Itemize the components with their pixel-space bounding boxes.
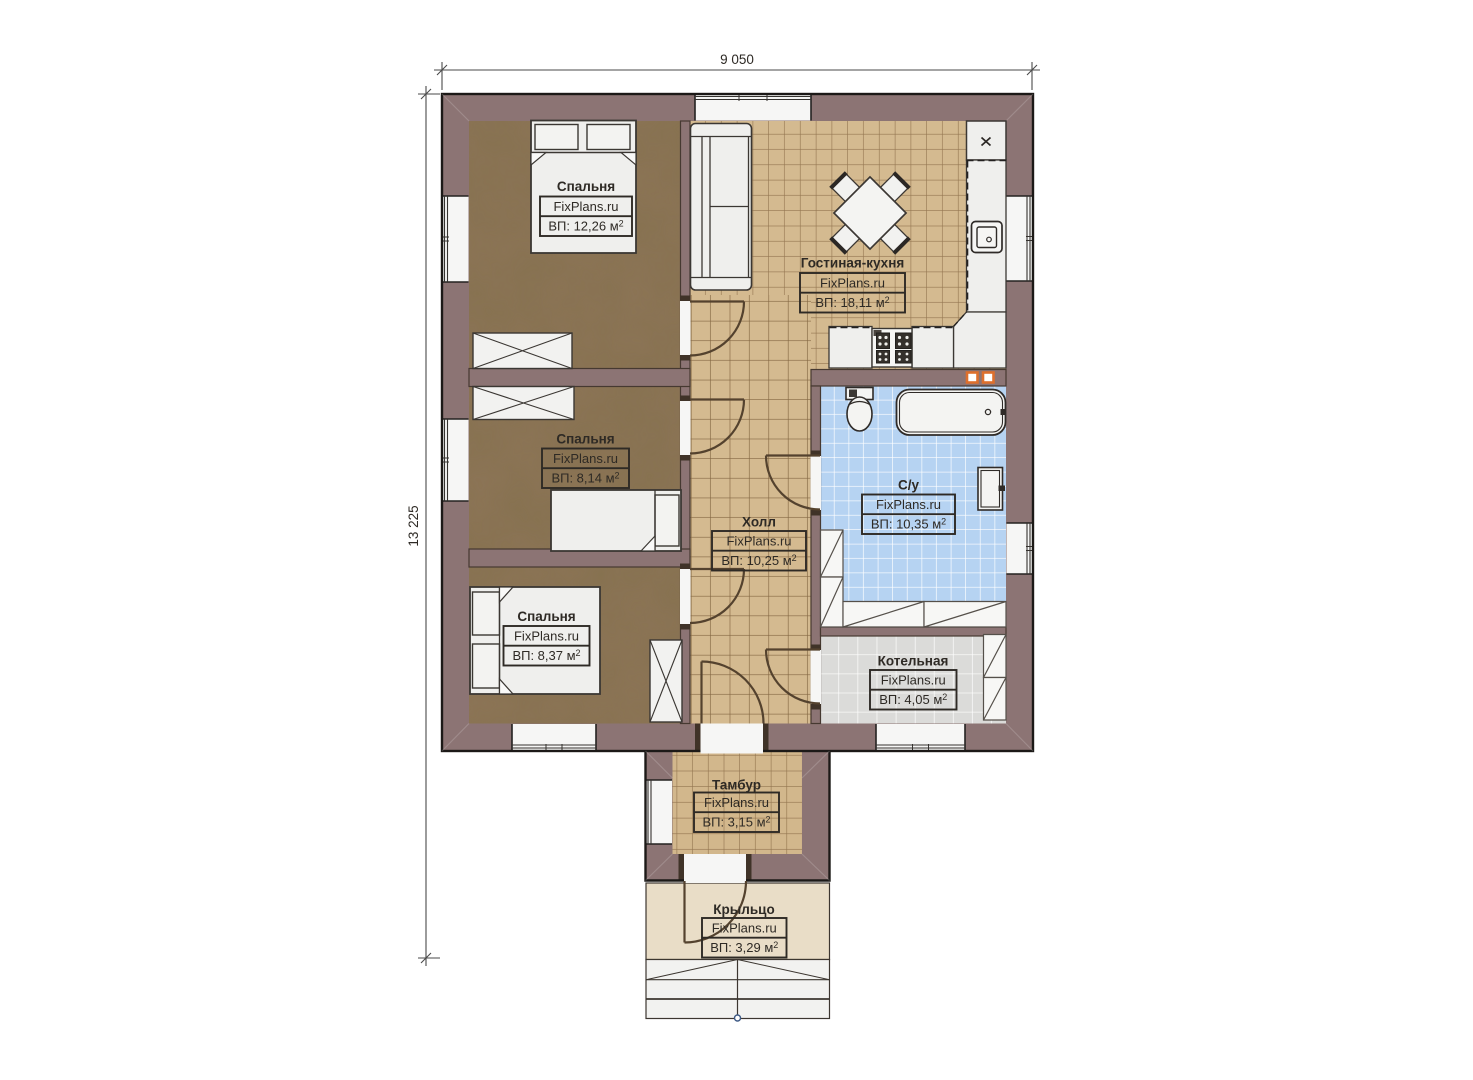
svg-text:ВП: 3,15 м2: ВП: 3,15 м2 <box>702 815 770 830</box>
svg-text:Спальня: Спальня <box>557 179 615 194</box>
svg-text:Котельная: Котельная <box>878 654 949 669</box>
svg-text:Гостиная-кухня: Гостиная-кухня <box>801 256 904 271</box>
svg-text:FixPlans.ru: FixPlans.ru <box>726 534 791 549</box>
svg-text:FixPlans.ru: FixPlans.ru <box>712 921 777 936</box>
svg-text:ВП: 18,11 м2: ВП: 18,11 м2 <box>815 295 889 310</box>
svg-text:Спальня: Спальня <box>517 609 575 624</box>
svg-text:Холл: Холл <box>742 515 776 530</box>
svg-text:ВП: 3,29 м2: ВП: 3,29 м2 <box>710 940 778 955</box>
svg-text:FixPlans.ru: FixPlans.ru <box>553 451 618 466</box>
svg-text:Спальня: Спальня <box>556 432 614 447</box>
svg-text:FixPlans.ru: FixPlans.ru <box>820 276 885 291</box>
svg-text:FixPlans.ru: FixPlans.ru <box>704 795 769 810</box>
svg-text:Тамбур: Тамбур <box>712 778 761 793</box>
svg-text:ВП: 8,14 м2: ВП: 8,14 м2 <box>551 471 619 486</box>
svg-text:FixPlans.ru: FixPlans.ru <box>553 199 618 214</box>
svg-text:ВП: 12,26 м2: ВП: 12,26 м2 <box>548 219 623 234</box>
svg-text:ВП: 10,35 м2: ВП: 10,35 м2 <box>871 517 946 532</box>
svg-text:FixPlans.ru: FixPlans.ru <box>514 629 579 644</box>
svg-text:FixPlans.ru: FixPlans.ru <box>881 673 946 688</box>
svg-text:13 225: 13 225 <box>406 505 421 546</box>
svg-text:Крыльцо: Крыльцо <box>713 902 774 917</box>
svg-text:9 050: 9 050 <box>720 52 754 67</box>
svg-text:FixPlans.ru: FixPlans.ru <box>876 497 941 512</box>
svg-text:ВП: 8,37 м2: ВП: 8,37 м2 <box>512 648 580 663</box>
svg-text:ВП: 4,05 м2: ВП: 4,05 м2 <box>879 692 947 707</box>
svg-text:С/у: С/у <box>898 478 920 493</box>
svg-text:ВП: 10,25 м2: ВП: 10,25 м2 <box>721 553 796 568</box>
